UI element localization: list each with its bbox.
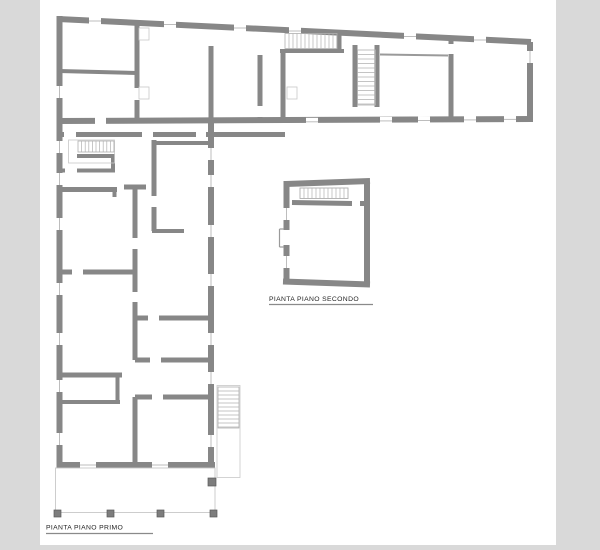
door-opening xyxy=(352,200,360,208)
porch-pillar xyxy=(157,510,164,517)
porch-pillar xyxy=(208,478,216,486)
door-opening xyxy=(448,44,455,54)
door-leaf-symbol xyxy=(287,87,297,99)
pdf-viewer-background: { "document": { "type": "architectural-f… xyxy=(0,0,600,550)
door-opening xyxy=(152,394,163,401)
porch-pillar xyxy=(54,510,61,517)
porch-pillar xyxy=(107,510,114,517)
door-opening xyxy=(72,269,83,276)
stair-outline xyxy=(358,50,376,105)
door-opening xyxy=(95,117,106,124)
door-opening xyxy=(196,131,206,138)
door-leaf-symbol xyxy=(139,87,149,99)
floorplan-drawing: PIANTA PIANO PRIMO PIANTA PIANO SECONDO xyxy=(0,0,600,550)
wall-segment xyxy=(283,282,370,285)
door-opening xyxy=(283,230,290,245)
stair-well-outline xyxy=(69,140,115,163)
door-leaf-symbol xyxy=(139,28,149,40)
second-floor-plan-label: PIANTA PIANO SECONDO xyxy=(269,296,359,303)
porch-outline xyxy=(56,468,216,513)
door-opening xyxy=(150,357,161,364)
porch-pillar xyxy=(210,510,217,517)
door-opening xyxy=(132,238,139,249)
openings-layer xyxy=(56,17,535,469)
door-opening xyxy=(64,131,76,138)
wall-segment xyxy=(286,181,370,184)
door-opening xyxy=(148,315,159,322)
door-opening xyxy=(257,106,264,117)
door-opening xyxy=(151,196,158,207)
wall-segment xyxy=(59,71,137,73)
thin-wall-segment xyxy=(380,55,448,56)
wall-segment xyxy=(292,203,352,204)
first-floor-plan-label: PIANTA PIANO PRIMO xyxy=(46,525,123,532)
stair-outline xyxy=(218,387,239,428)
walls-layer xyxy=(57,16,531,468)
door-opening xyxy=(142,131,153,138)
door-opening xyxy=(132,292,139,302)
wall-segment xyxy=(57,119,531,121)
stairs-layer xyxy=(69,34,376,478)
